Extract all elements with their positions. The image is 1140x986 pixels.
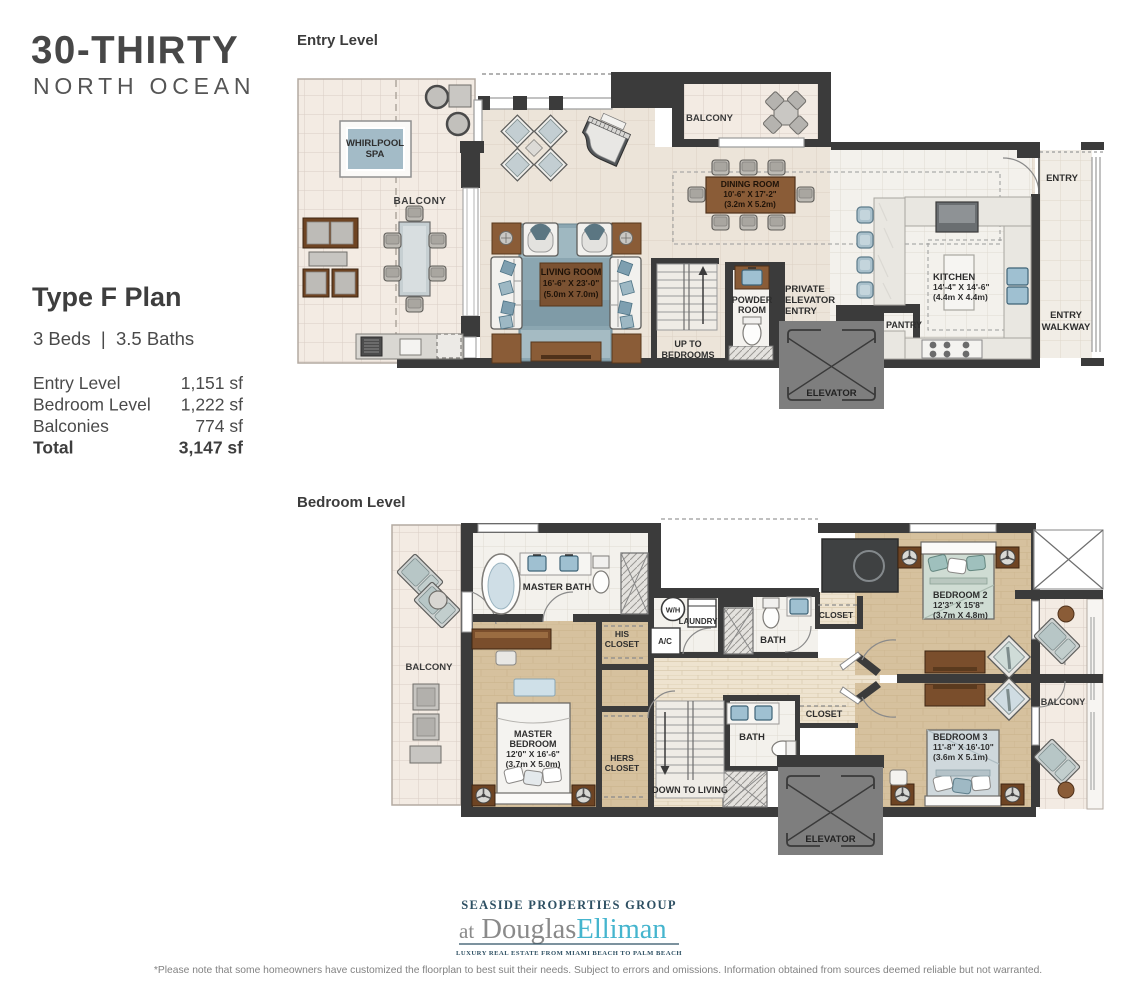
svg-text:CLOSET: CLOSET bbox=[605, 763, 640, 773]
svg-text:WALKWAY: WALKWAY bbox=[1042, 322, 1091, 333]
svg-text:CLOSET: CLOSET bbox=[605, 639, 640, 649]
svg-text:LUXURY REAL ESTATE FROM MIAMI: LUXURY REAL ESTATE FROM MIAMI BEACH TO P… bbox=[456, 950, 682, 957]
svg-text:(3.2m X 5.2m): (3.2m X 5.2m) bbox=[724, 200, 776, 209]
svg-text:LIVING ROOM: LIVING ROOM bbox=[541, 267, 602, 277]
svg-text:Bedroom Level: Bedroom Level bbox=[33, 395, 151, 415]
svg-text:(5.0m X 7.0m): (5.0m X 7.0m) bbox=[544, 289, 599, 299]
svg-text:BALCONY: BALCONY bbox=[394, 196, 447, 207]
svg-text:14'-4" X 14'-6": 14'-4" X 14'-6" bbox=[933, 282, 990, 292]
svg-text:BATH: BATH bbox=[760, 635, 786, 646]
svg-text:ENTRY: ENTRY bbox=[785, 306, 818, 317]
svg-text:(3.7m X 4.8m): (3.7m X 4.8m) bbox=[933, 610, 988, 620]
svg-text:(4.4m X 4.4m): (4.4m X 4.4m) bbox=[933, 292, 988, 302]
svg-text:BEDROOM 3: BEDROOM 3 bbox=[933, 732, 988, 742]
svg-text:PRIVATE: PRIVATE bbox=[785, 284, 825, 295]
svg-text:16'-6" X 23'-0": 16'-6" X 23'-0" bbox=[543, 278, 600, 288]
svg-text:A/C: A/C bbox=[658, 637, 672, 646]
svg-text:12'3" X 15'8": 12'3" X 15'8" bbox=[933, 600, 984, 610]
svg-text:3,147 sf: 3,147 sf bbox=[179, 438, 243, 458]
svg-text:ENTRY: ENTRY bbox=[1050, 310, 1083, 321]
svg-text:BATH: BATH bbox=[739, 732, 765, 743]
svg-text:Bedroom Level: Bedroom Level bbox=[297, 494, 405, 511]
svg-text:1,151 sf: 1,151 sf bbox=[181, 373, 243, 393]
svg-text:DINING ROOM: DINING ROOM bbox=[721, 179, 780, 189]
svg-text:Type F Plan: Type F Plan bbox=[32, 282, 182, 312]
svg-text:CLOSET: CLOSET bbox=[819, 610, 854, 620]
svg-text:ELEVATOR: ELEVATOR bbox=[785, 295, 835, 306]
svg-text:CLOSET: CLOSET bbox=[806, 709, 843, 719]
svg-text:HIS: HIS bbox=[615, 629, 630, 639]
svg-text:HERS: HERS bbox=[610, 753, 634, 763]
svg-text:NORTH OCEAN: NORTH OCEAN bbox=[33, 73, 255, 99]
svg-text:30-THIRTY: 30-THIRTY bbox=[31, 29, 239, 72]
svg-text:PANTRY: PANTRY bbox=[886, 320, 922, 330]
svg-text:Entry Level: Entry Level bbox=[33, 373, 121, 393]
svg-text:Total: Total bbox=[33, 438, 74, 458]
svg-text:SPA: SPA bbox=[366, 149, 385, 160]
svg-text:Entry Level: Entry Level bbox=[297, 32, 378, 49]
svg-text:MASTER BATH: MASTER BATH bbox=[523, 582, 592, 593]
svg-text:MASTER: MASTER bbox=[514, 729, 553, 739]
svg-text:BALCONY: BALCONY bbox=[406, 662, 454, 673]
svg-text:BALCONY: BALCONY bbox=[686, 113, 734, 124]
svg-text:10'-6" X 17'-2": 10'-6" X 17'-2" bbox=[723, 190, 776, 199]
svg-text:BEDROOMS: BEDROOMS bbox=[661, 350, 714, 360]
svg-text:12'0" X 16'-6": 12'0" X 16'-6" bbox=[506, 749, 560, 759]
svg-text:SEASIDE PROPERTIES GROUP: SEASIDE PROPERTIES GROUP bbox=[461, 898, 677, 912]
svg-text:UP TO: UP TO bbox=[674, 339, 701, 349]
svg-text:1,222 sf: 1,222 sf bbox=[181, 395, 243, 415]
svg-text:DOWN TO LIVING: DOWN TO LIVING bbox=[652, 785, 728, 795]
svg-text:*Please note that some homeown: *Please note that some homeowners have c… bbox=[154, 965, 1042, 976]
svg-text:(3.6m X 5.1m): (3.6m X 5.1m) bbox=[933, 752, 988, 762]
svg-text:LAUNDRY: LAUNDRY bbox=[679, 617, 718, 626]
svg-text:W/H: W/H bbox=[666, 606, 681, 615]
svg-text:3 Beds | 3.5 Baths: 3 Beds | 3.5 Baths bbox=[33, 328, 194, 349]
svg-text:BEDROOM: BEDROOM bbox=[510, 739, 557, 749]
svg-text:at DouglasElliman: at DouglasElliman bbox=[459, 914, 667, 945]
svg-text:ENTRY: ENTRY bbox=[1046, 173, 1079, 184]
svg-text:ROOM: ROOM bbox=[738, 305, 766, 315]
svg-text:BALCONY: BALCONY bbox=[1041, 697, 1086, 707]
svg-text:BEDROOM 2: BEDROOM 2 bbox=[933, 590, 988, 600]
svg-text:(3.7m X 5.0m): (3.7m X 5.0m) bbox=[506, 759, 561, 769]
svg-text:WHIRLPOOL: WHIRLPOOL bbox=[346, 138, 404, 149]
svg-text:11'-8" X 16'-10": 11'-8" X 16'-10" bbox=[933, 742, 994, 752]
svg-text:774 sf: 774 sf bbox=[195, 416, 243, 436]
svg-text:Balconies: Balconies bbox=[33, 416, 109, 436]
svg-text:POWDER: POWDER bbox=[732, 295, 773, 305]
